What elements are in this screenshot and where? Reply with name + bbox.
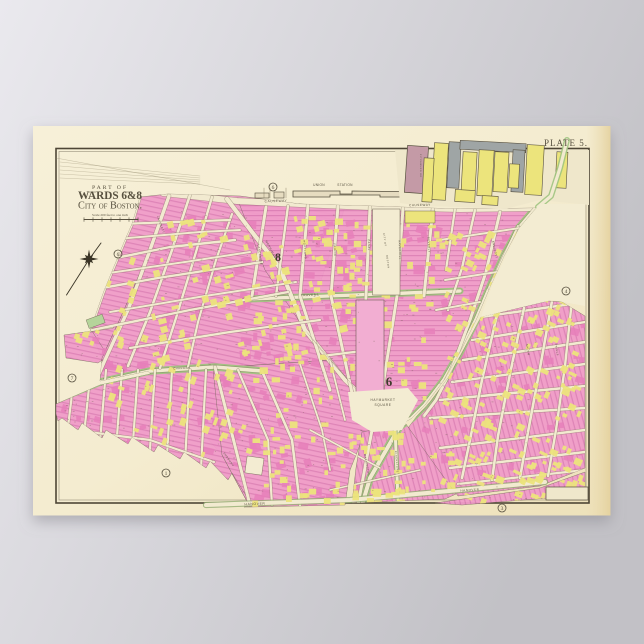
svg-text:4: 4 bbox=[565, 289, 568, 295]
svg-text:HANOVER: HANOVER bbox=[244, 502, 265, 507]
svg-text:SQUARE: SQUARE bbox=[374, 403, 391, 407]
svg-text:CAUSEWAY: CAUSEWAY bbox=[265, 199, 288, 204]
svg-text:HAYMARKET: HAYMARKET bbox=[371, 398, 396, 402]
svg-text:1: 1 bbox=[165, 471, 168, 477]
svg-text:UNION: UNION bbox=[313, 183, 325, 187]
svg-text:6: 6 bbox=[117, 252, 120, 258]
svg-text:6: 6 bbox=[386, 374, 393, 389]
svg-text:3: 3 bbox=[501, 506, 504, 512]
svg-text:CANAL: CANAL bbox=[367, 239, 371, 251]
svg-text:City of Boston.: City of Boston. bbox=[78, 201, 142, 212]
svg-text:TRAVERS: TRAVERS bbox=[301, 293, 319, 297]
svg-text:Scale 200 feet to one inch: Scale 200 feet to one inch bbox=[92, 213, 128, 217]
svg-text:FITCHBURG RR: FITCHBURG RR bbox=[419, 154, 421, 178]
svg-text:STATION: STATION bbox=[337, 183, 353, 187]
svg-text:7: 7 bbox=[71, 376, 74, 382]
svg-text:PLATE 5.: PLATE 5. bbox=[544, 138, 588, 148]
svg-text:6: 6 bbox=[272, 185, 275, 191]
svg-text:CAUSEWAY: CAUSEWAY bbox=[409, 203, 431, 207]
